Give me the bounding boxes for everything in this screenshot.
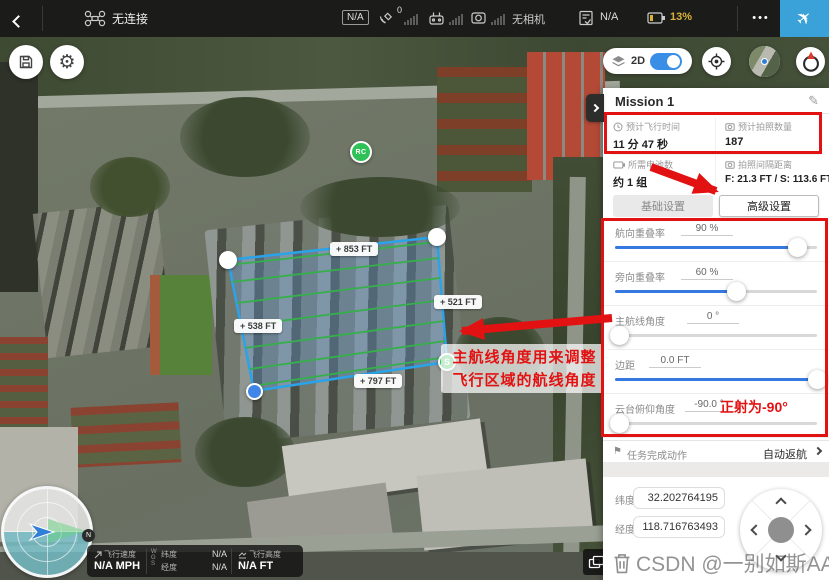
- section-divider-band: [603, 462, 829, 477]
- annotation-route-angle-note: 主航线角度用来调整 飞行区域的航线角度: [441, 344, 608, 393]
- edge-distance-label-right: + 521 FT: [434, 295, 482, 309]
- polygon-vertex-handle[interactable]: [428, 228, 446, 246]
- telemetry-bar: 飞行速度 N/A MPH WGS 纬度 N/A 经度 N/A 飞行高度: [87, 545, 303, 577]
- rc-location-marker: RC: [350, 141, 372, 163]
- compass-north-badge: N: [82, 529, 95, 542]
- wgs-label: WGS: [151, 549, 158, 577]
- minimap-button[interactable]: [749, 46, 780, 77]
- takeoff-button[interactable]: ✈: [780, 0, 829, 37]
- stat-battery-count: 所需电池数 约 1 组: [613, 158, 673, 190]
- slider-handle[interactable]: [610, 414, 629, 433]
- gps-count: 0: [397, 5, 402, 15]
- slider-label: 旁向重叠率: [615, 269, 665, 284]
- chevron-right-icon: [591, 104, 599, 112]
- longitude-label: 经度: [615, 521, 635, 536]
- camera-icon: [725, 160, 735, 169]
- telemetry-altitude: 飞行高度 N/A FT: [232, 545, 287, 577]
- mission-header: Mission 1 ✎: [603, 88, 829, 114]
- telemetry-lng-label: 经度: [161, 562, 177, 573]
- battery-icon[interactable]: [647, 10, 666, 26]
- note-line: 飞行区域的航线角度: [452, 369, 596, 392]
- polygon-vertex-handle[interactable]: [219, 251, 237, 269]
- chevron-left-icon: [12, 15, 25, 28]
- map-terrain-roof-rows-sw: [71, 402, 182, 468]
- stat-value: 11 分 47 秒: [613, 136, 680, 152]
- speed-label: 飞行速度: [104, 549, 136, 560]
- stat-value: 187: [725, 136, 792, 148]
- aircraft-heading-arrow: [28, 521, 58, 543]
- map-terrain-trees-patch: [195, 417, 295, 487]
- flight-mode-badge: N/A: [342, 10, 369, 25]
- stat-flight-time: 预计飞行时间 11 分 47 秒: [613, 120, 680, 152]
- gps-satellite-icon[interactable]: [379, 11, 395, 25]
- side-overlap-slider[interactable]: [615, 290, 817, 293]
- stat-photo-count: 预计拍照数量 187: [725, 120, 792, 148]
- latitude-input[interactable]: [633, 487, 725, 509]
- annotation-gimbal-note: 正射为-90°: [720, 397, 788, 417]
- map-orientation-button[interactable]: [796, 47, 825, 76]
- side-overlap-input[interactable]: [681, 267, 733, 280]
- gimbal-pitch-slider[interactable]: [615, 422, 817, 425]
- nudge-left-button[interactable]: [750, 524, 761, 535]
- stat-value: F: 21.3 FT / S: 113.6 FT: [725, 174, 829, 185]
- gps-signal-bars: [404, 13, 418, 25]
- settings-button[interactable]: ⚙: [50, 45, 84, 79]
- battery-small-icon: [613, 161, 625, 169]
- slider-handle[interactable]: [610, 326, 629, 345]
- map-terrain-dark-buildings-left: [0, 62, 38, 292]
- back-button[interactable]: [14, 13, 23, 31]
- slider-row-margin: 边距: [603, 350, 829, 394]
- camera-status: 无相机: [512, 11, 545, 27]
- speed-value: N/A MPH: [94, 560, 140, 572]
- edge-distance-label-bottom: + 797 FT: [354, 374, 402, 388]
- nudge-right-button[interactable]: [800, 524, 811, 535]
- map-terrain-roof-rows-west: [0, 337, 48, 432]
- polygon-selected-vertex[interactable]: [246, 383, 263, 400]
- locate-button[interactable]: [702, 47, 731, 76]
- finish-action-label: 任务完成动作: [627, 447, 687, 462]
- slider-label: 云台俯仰角度: [615, 401, 675, 416]
- map-mode-label: 2D: [631, 55, 645, 67]
- finish-action-row[interactable]: ⚑ 任务完成动作 自动返航: [603, 440, 829, 462]
- nudge-center-button[interactable]: [768, 517, 794, 543]
- slider-row-gimbal-pitch: 云台俯仰角度: [603, 394, 829, 438]
- tab-basic-settings[interactable]: 基础设置: [613, 195, 713, 217]
- edge-distance-label-left: + 538 FT: [234, 319, 282, 333]
- aircraft-connection-status[interactable]: 无连接: [112, 10, 148, 27]
- remote-controller-icon[interactable]: [428, 10, 445, 26]
- divider: [611, 154, 821, 155]
- divider: [737, 6, 738, 31]
- trash-icon: [612, 551, 632, 575]
- slider-handle[interactable]: [727, 282, 746, 301]
- latitude-label: 纬度: [615, 492, 635, 507]
- altitude-label: 飞行高度: [249, 549, 281, 560]
- minimap-location-dot: [761, 58, 768, 65]
- course-overlap-input[interactable]: [681, 223, 733, 236]
- camera-icon: [725, 122, 735, 131]
- map-terrain-sports-field: [150, 275, 212, 375]
- rc-signal-bars: [449, 13, 463, 25]
- route-angle-slider[interactable]: [615, 334, 817, 337]
- edit-mission-name-icon[interactable]: ✎: [808, 93, 819, 109]
- panel-collapse-handle[interactable]: [586, 94, 604, 122]
- more-menu-button[interactable]: •••: [744, 12, 778, 24]
- aircraft-status-value: N/A: [600, 11, 618, 23]
- slider-handle[interactable]: [788, 238, 807, 257]
- map-mode-toggle[interactable]: 2D: [603, 48, 692, 74]
- margin-input[interactable]: [649, 355, 701, 368]
- speed-icon: [94, 551, 102, 559]
- stat-photo-interval: 拍照间隔距离 F: 21.3 FT / S: 113.6 FT: [725, 158, 829, 185]
- map-terrain-roof-rows-ne: [437, 67, 532, 192]
- camera-signal-bars: [491, 13, 505, 25]
- compass-needle-icon: [798, 49, 824, 75]
- slider-row-side-overlap: 旁向重叠率: [603, 262, 829, 306]
- map-terrain-trees-patch: [90, 157, 170, 217]
- save-mission-button[interactable]: [9, 45, 43, 79]
- watermark-text: CSDN @一别如斯AA: [618, 548, 829, 578]
- aircraft-icon: [84, 10, 106, 27]
- slider-row-course-overlap: 航向重叠率: [603, 218, 829, 262]
- stat-label: 拍照间隔距离: [738, 158, 792, 171]
- slider-label: 航向重叠率: [615, 225, 665, 240]
- tab-advanced-settings[interactable]: 高级设置: [719, 195, 819, 217]
- map-layers-icon: [588, 555, 605, 570]
- telemetry-speed: 飞行速度 N/A MPH: [87, 545, 146, 577]
- divider: [42, 6, 43, 31]
- slider-label: 边距: [615, 357, 635, 372]
- stat-label: 所需电池数: [628, 158, 673, 171]
- mission-title: Mission 1: [615, 94, 674, 109]
- 2d-toggle-switch[interactable]: [650, 53, 682, 70]
- flag-icon: ⚑: [613, 446, 622, 457]
- slider-handle[interactable]: [808, 370, 827, 389]
- divider: [715, 118, 716, 188]
- mission-panel: Mission 1 ✎ 预计飞行时间 11 分 47 秒 预计拍照数量 187 …: [603, 88, 829, 580]
- toggle-knob: [667, 55, 680, 68]
- layers-icon: [611, 55, 626, 68]
- map-terrain-trees-patch: [180, 97, 310, 177]
- stat-label: 预计飞行时间: [626, 120, 680, 133]
- longitude-input[interactable]: [633, 516, 725, 538]
- battery-percent: 13%: [670, 11, 692, 23]
- stat-value: 约 1 组: [613, 174, 673, 190]
- telemetry-lat-value: N/A: [212, 549, 227, 560]
- aircraft-status-list-icon[interactable]: [577, 9, 595, 27]
- edge-distance-label-top: + 853 FT: [330, 242, 378, 256]
- telemetry-lat-label: 纬度: [161, 549, 177, 560]
- altitude-value: N/A FT: [238, 560, 281, 572]
- telemetry-lng-value: N/A: [212, 562, 227, 573]
- gear-icon: ⚙: [58, 51, 75, 74]
- takeoff-plane-icon: ✈: [792, 6, 817, 32]
- attitude-compass: N: [1, 486, 93, 578]
- note-line: 主航线角度用来调整: [452, 346, 596, 369]
- top-status-bar: 无连接 N/A 0 无相机 N/A 13% ••• ✈: [0, 0, 829, 37]
- crosshair-icon: [708, 53, 725, 70]
- nudge-up-button[interactable]: [775, 497, 786, 508]
- course-overlap-slider[interactable]: [615, 246, 817, 249]
- chevron-right-icon: [814, 447, 822, 455]
- camera-signal-icon[interactable]: [470, 10, 487, 25]
- margin-slider[interactable]: [615, 378, 817, 381]
- save-icon: [18, 54, 34, 70]
- dji-pilot-app: + 853 FT + 521 FT + 538 FT + 797 FT S RC…: [0, 0, 829, 580]
- clock-icon: [613, 122, 623, 132]
- route-angle-input[interactable]: [687, 311, 739, 324]
- telemetry-coords: WGS 纬度 N/A 经度 N/A: [147, 545, 231, 577]
- altitude-icon: [238, 551, 247, 559]
- watermark: CSDN @一别如斯AA: [612, 548, 829, 578]
- stat-label: 预计拍照数量: [738, 120, 792, 133]
- finish-action-value: 自动返航: [763, 446, 807, 462]
- slider-row-route-angle: 主航线角度: [603, 306, 829, 350]
